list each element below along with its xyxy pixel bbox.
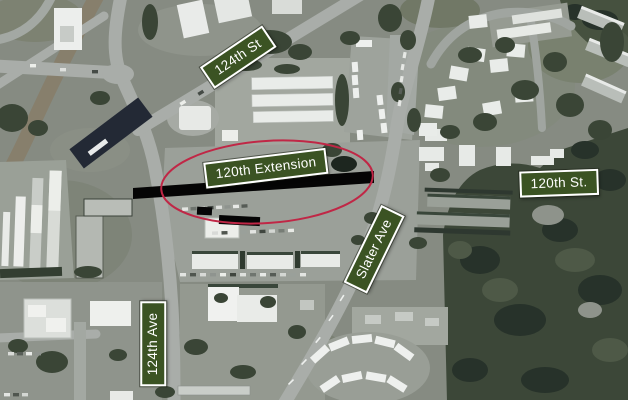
aerial-map-figure: 124th St 120th Extension 120th St. Slate… (0, 0, 628, 400)
street-label-124th-ave: 124th Ave (140, 302, 166, 387)
street-label-120th-st: 120th St. (519, 169, 599, 197)
warehouse-row (252, 76, 334, 122)
extension-bar-small-2 (197, 207, 212, 216)
aerial-basemap (0, 0, 628, 400)
tree-shadow-blob (331, 156, 357, 172)
